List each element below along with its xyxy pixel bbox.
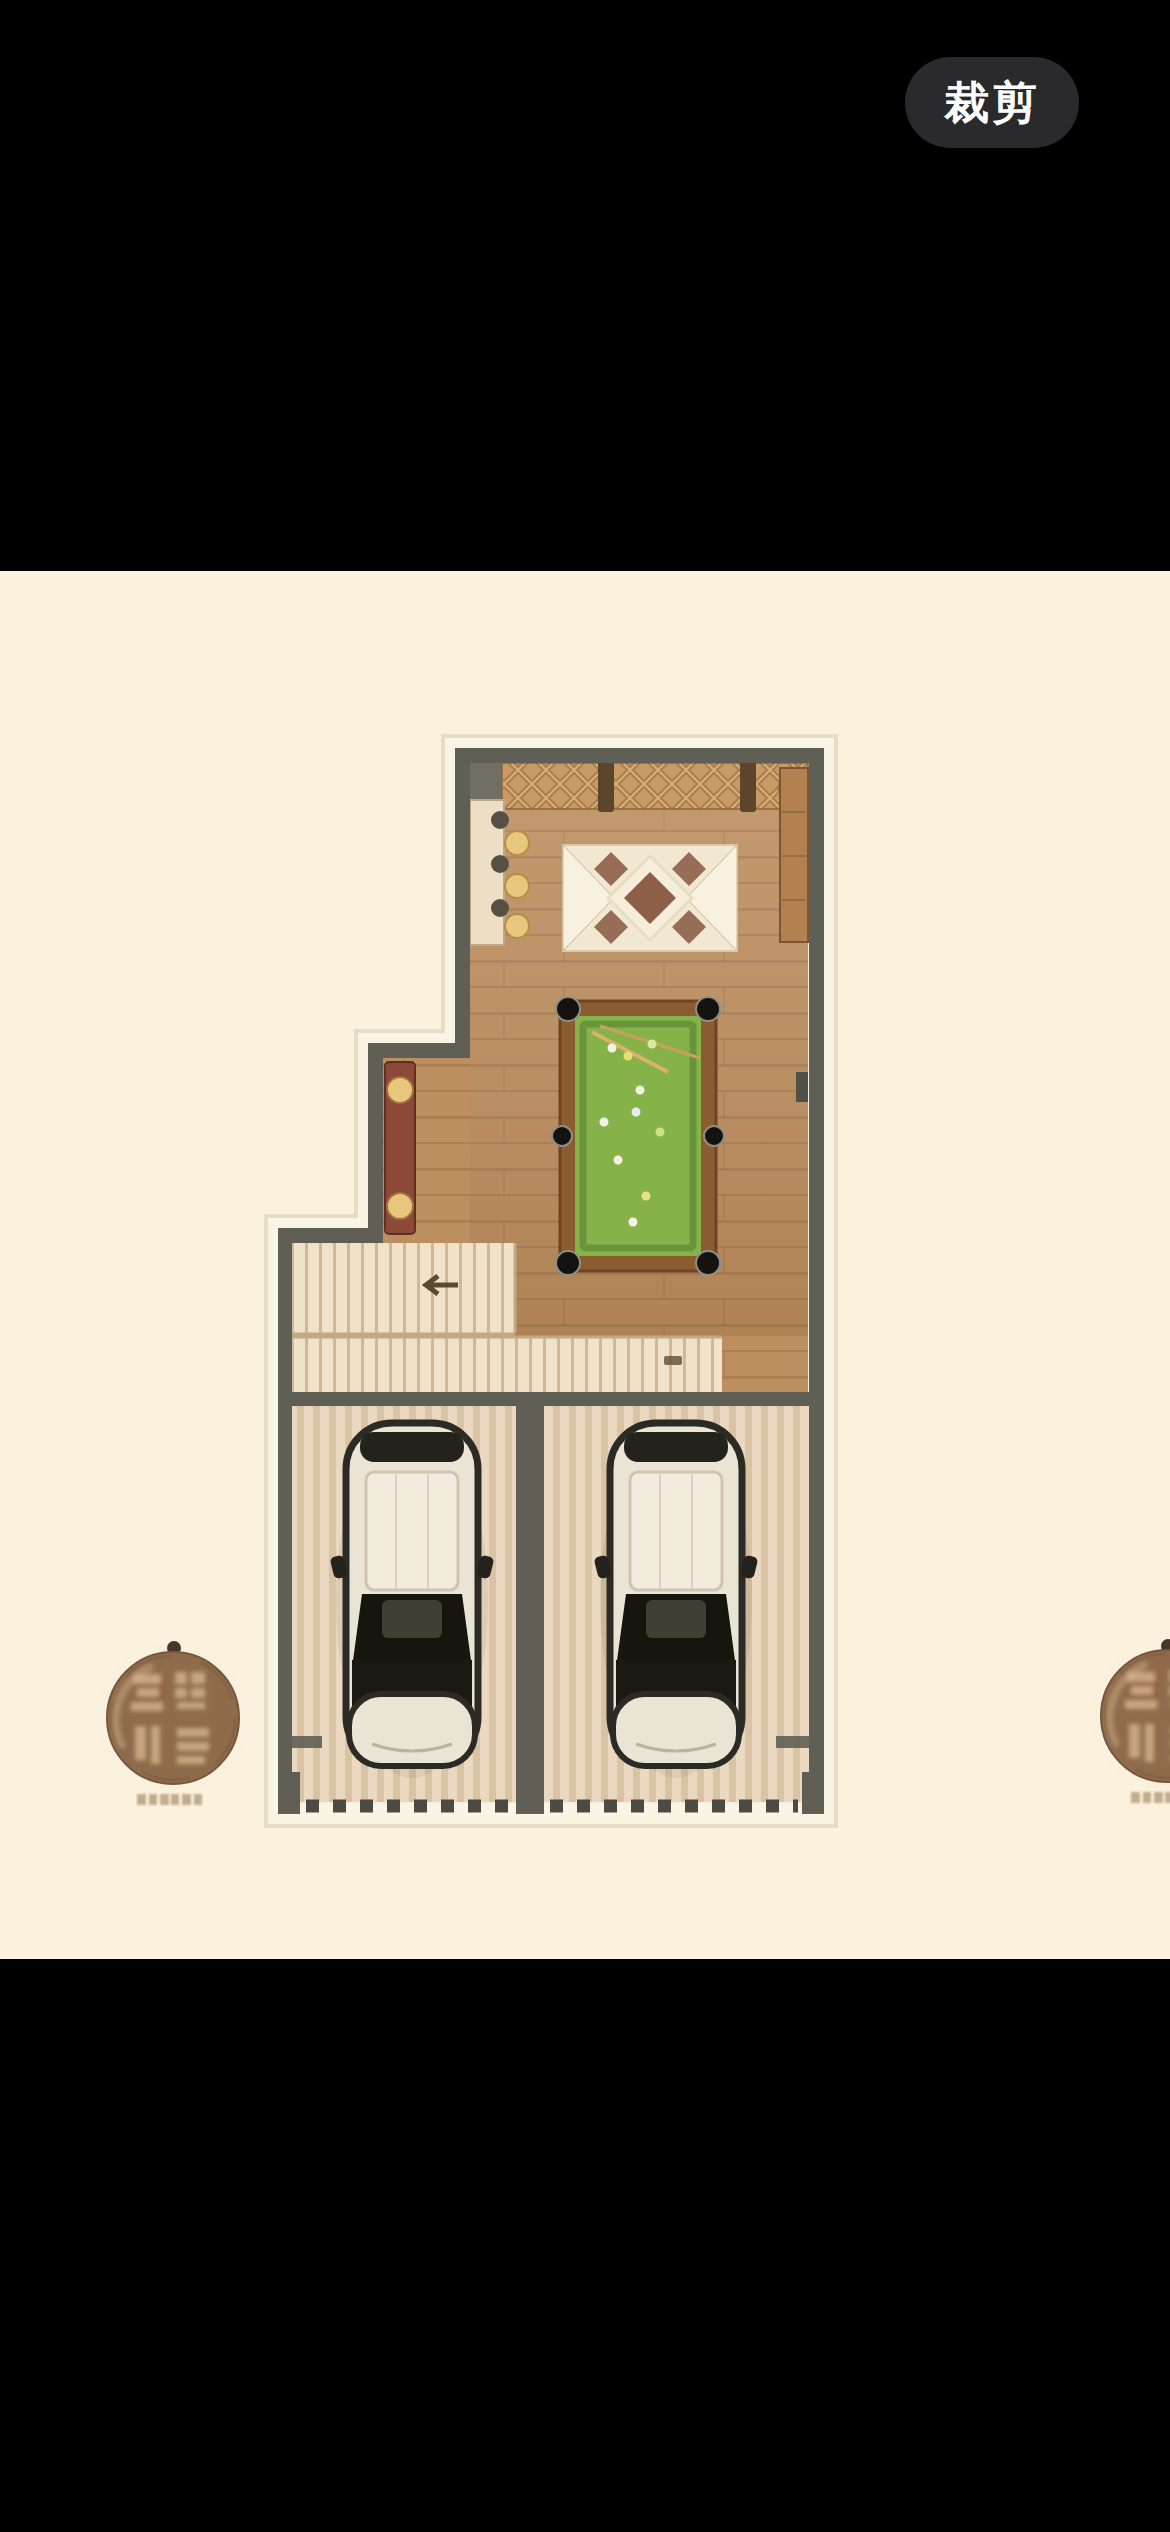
crop-button[interactable]: 裁剪 bbox=[905, 57, 1079, 148]
photo-viewer-screen: 裁剪 bbox=[0, 0, 1170, 2532]
car-left bbox=[330, 1422, 495, 1778]
wall-opening-mark bbox=[796, 1072, 808, 1102]
car-right bbox=[594, 1422, 759, 1778]
floor-plan-photo[interactable] bbox=[0, 0, 1170, 2532]
side-cabinet bbox=[385, 1062, 415, 1234]
dining-rug-with-table bbox=[563, 845, 737, 951]
billiards-table bbox=[552, 997, 724, 1275]
lattice-screen bbox=[502, 763, 808, 809]
